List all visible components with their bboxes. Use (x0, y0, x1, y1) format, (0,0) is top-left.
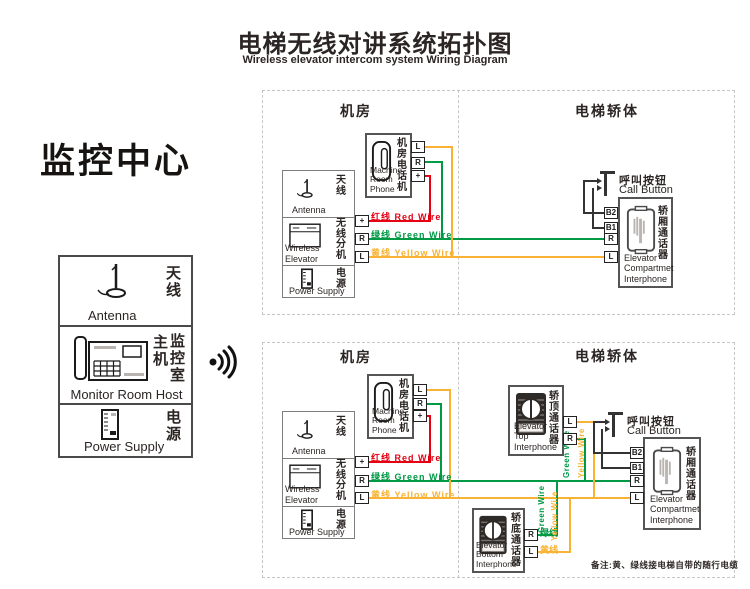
call-button-wire (583, 181, 585, 214)
top-interphone-box: 轿 顶 通 话 器 Elevator Top Interphone (508, 385, 564, 456)
yellow-wire-short-label: 黄线 (540, 543, 558, 556)
desk-phone-icon (72, 333, 152, 385)
antenna-icon (92, 262, 136, 302)
antenna-icon (294, 415, 318, 445)
lower-station-antenna-en: Antenna (292, 446, 326, 456)
lower-station-terminal-r: R (355, 475, 369, 487)
lower-station-power-en: Power Supply (289, 527, 345, 537)
red-wire-label: 红线 Red Wire (371, 451, 441, 464)
lower-machine-room-label: 机房 (340, 347, 372, 367)
green-wire-vertical-label: Green Wire (537, 485, 546, 533)
upper-elevator-car-label: 电梯轿体 (575, 101, 639, 121)
yellow-wire-segment (427, 389, 451, 391)
call-button-symbol (612, 413, 615, 437)
monitor-host-cell: 主 机 监 控 室 Monitor Room Host (60, 327, 191, 405)
upper-machine-room-label: 机房 (340, 101, 372, 121)
bottom-interphone-terminal-l: L (524, 546, 538, 558)
upper-phone-terminal-l: L (411, 141, 425, 153)
upper-compartment-box: 轿 厢 通 话 器 Elevator Compartmet Interphone (618, 197, 673, 288)
upper-station-power-cell: 电 源 Power Supply (283, 266, 354, 297)
lower-machine-phone-en: Machine Room Phone (372, 407, 412, 436)
call-button-wire (583, 212, 606, 214)
call-button-arrow (605, 419, 610, 425)
upper-station-box: 天 线 Antenna 无 线 分 机 Wireless Elevator (282, 170, 355, 298)
upper-station-wireless-en: Wireless Elevator (285, 243, 354, 264)
lower-phone-terminal-r: R (413, 398, 427, 410)
call-button-symbol (608, 412, 623, 415)
upper-station-terminal-plus: + (355, 215, 369, 227)
upper-compartment-terminal-l: L (604, 251, 618, 263)
red-wire-segment (427, 415, 431, 417)
upper-panel-divider (458, 90, 459, 315)
wiring-diagram-page: 电梯无线对讲系统拓扑图 Wireless elevator intercom s… (0, 0, 750, 589)
monitor-host-zh-right: 监 控 室 (170, 333, 185, 384)
upper-station-power-en: Power Supply (289, 286, 345, 296)
monitor-center-title: 监控中心 (40, 133, 192, 184)
lower-station-terminal-plus: + (355, 456, 369, 468)
lower-station-power-cell: 电 源 Power Supply (283, 507, 354, 538)
upper-compartment-terminal-r: R (604, 233, 618, 245)
upper-station-wireless-cell: 无 线 分 机 Wireless Elevator (283, 218, 354, 266)
upper-machine-phone-box: 机 房 电 话 机 Machine Room Phone (365, 133, 412, 198)
monitor-antenna-zh: 天 线 (166, 265, 181, 299)
red-wire-label: 红线 Red Wire (371, 210, 441, 223)
upper-phone-terminal-r: R (411, 157, 425, 169)
upper-station-antenna-en: Antenna (292, 205, 326, 215)
call-button-wire (592, 188, 594, 229)
yellow-wire-segment (569, 497, 571, 553)
lower-panel-divider (458, 342, 459, 578)
top-interphone-terminal-l: L (563, 416, 577, 428)
lower-compartment-box: 轿 厢 通 话 器 Elevator Compartmet Interphone (643, 437, 701, 530)
power-supply-icon (98, 408, 122, 442)
upper-station-terminal-l: L (355, 251, 369, 263)
green-wire-label: 绿线 Green Wire (371, 228, 452, 241)
yellow-wire-segment (451, 146, 453, 258)
call-button-arrow (605, 426, 610, 432)
lower-station-box: 天 线 Antenna 无 线 分 机 Wireless Elevator (282, 411, 355, 539)
call-button-arrow (597, 185, 602, 191)
monitor-power-cell: 电 源 Power Supply (60, 405, 191, 456)
yellow-wire-label: 黄线 Yellow Wire (371, 246, 455, 259)
monitor-antenna-cell: 天 线 Antenna (60, 257, 191, 327)
upper-call-button-en: Call Button (619, 184, 673, 196)
lower-elevator-car-label: 电梯轿体 (575, 346, 639, 366)
lower-compartment-terminal-b1: B1 (630, 462, 644, 474)
upper-station-antenna-cell: 天 线 Antenna (283, 171, 354, 218)
top-interphone-en: Elevator Top Interphone (514, 421, 562, 452)
top-interphone-terminal-r: R (563, 433, 577, 445)
lower-compartment-terminal-r: R (630, 475, 644, 487)
bottom-interphone-terminal-r: R (524, 529, 538, 541)
yellow-wire-label: 黄线 Yellow Wire (371, 488, 455, 501)
monitor-center-box: 天 线 Antenna 主 机 监 控 室 (58, 255, 193, 458)
monitor-host-en: Monitor Room Host (61, 387, 192, 402)
lower-station-antenna-zh: 天 线 (336, 416, 346, 438)
upper-station-antenna-zh: 天 线 (336, 175, 346, 197)
yellow-wire-vertical-label: Yellow Wire (550, 491, 559, 541)
monitor-power-en: Power Supply (84, 439, 164, 454)
lower-phone-terminal-plus: + (413, 410, 427, 422)
antenna-icon (294, 174, 318, 204)
lower-station-wireless-cell: 无 线 分 机 Wireless Elevator (283, 459, 354, 507)
lower-station-terminal-l: L (355, 492, 369, 504)
compartment-interphone-icon (626, 204, 656, 256)
upper-compartment-terminal-b2: B2 (604, 207, 618, 219)
green-wire-label: 绿线 Green Wire (371, 470, 452, 483)
lower-phone-terminal-l: L (413, 384, 427, 396)
upper-compartment-en: Elevator Compartmet Interphone (624, 253, 674, 284)
bottom-interphone-en: Elevator Bottom Interphone (476, 541, 523, 570)
monitor-antenna-en: Antenna (88, 308, 136, 323)
yellow-wire-vertical-label: Yellow Wire (577, 428, 586, 478)
monitor-host-zh-left: 主 机 (153, 334, 168, 384)
call-button-wire (601, 429, 603, 469)
call-button-arrow (597, 178, 602, 184)
monitor-power-zh: 电 源 (166, 409, 181, 443)
compartment-interphone-icon (652, 445, 682, 497)
call-button-symbol (600, 171, 615, 174)
upper-machine-phone-en: Machine Room Phone (370, 166, 410, 195)
lower-station-antenna-cell: 天 线 Antenna (283, 412, 354, 459)
lower-machine-phone-box: 机 房 电 话 机 Machine Room Phone (367, 374, 414, 439)
upper-phone-terminal-plus: + (411, 170, 425, 182)
wireless-signal-icon (206, 342, 246, 382)
call-button-wire (583, 180, 597, 182)
monitor-host-zh: 主 机 监 控 室 (153, 333, 185, 384)
diagram-note: 备注:黄、绿线接电梯自带的随行电缆 (591, 559, 738, 571)
lower-station-wireless-en: Wireless Elevator (285, 484, 354, 505)
red-wire-segment (425, 175, 431, 177)
call-button-symbol (604, 172, 607, 196)
call-button-wire (593, 422, 595, 454)
page-subtitle: Wireless elevator intercom system Wiring… (230, 54, 520, 66)
bottom-interphone-box: 轿 底 通 话 器 Elevator Bottom Interphone (472, 508, 525, 573)
call-button-wire (593, 452, 632, 454)
lower-compartment-terminal-b2: B2 (630, 447, 644, 459)
upper-station-terminal-r: R (355, 233, 369, 245)
lower-call-button-en: Call Button (627, 425, 681, 437)
call-button-wire (601, 467, 632, 469)
yellow-wire-segment (425, 146, 453, 148)
lower-compartment-en: Elevator Compartmet Interphone (650, 494, 700, 525)
lower-compartment-terminal-l: L (630, 492, 644, 504)
